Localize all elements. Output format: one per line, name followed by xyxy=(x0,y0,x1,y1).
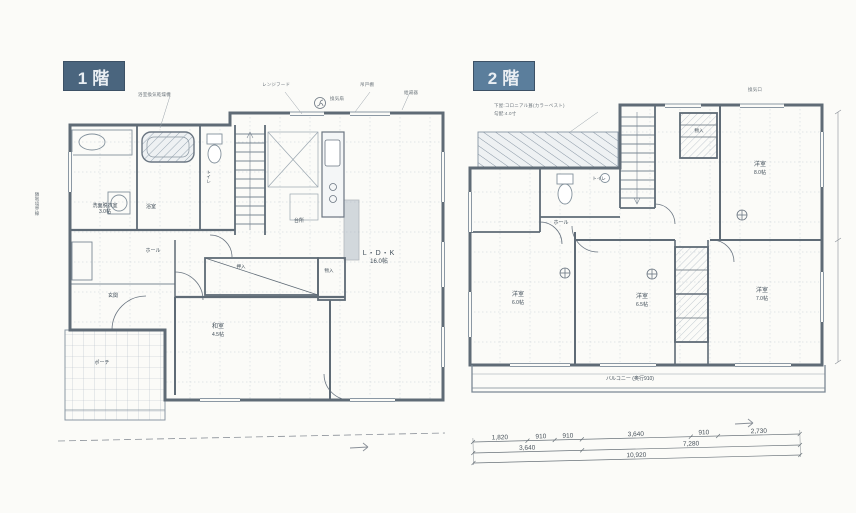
room-label-storage-1f: 物入 xyxy=(315,268,343,274)
room-label-toilet-1f: トイレ xyxy=(206,170,212,184)
note-bath-fan: 浴室換気乾燥機 xyxy=(138,92,171,98)
floor1-plan-drawing xyxy=(50,92,450,492)
note-cupboard: 吊戸棚 xyxy=(360,82,374,88)
ceiling-light-icons xyxy=(560,210,747,279)
room-label-bed3: 洋室 6.5帖 xyxy=(622,294,662,308)
dim-value: 910 xyxy=(698,429,709,436)
room-label-hall-2f: ホール xyxy=(544,220,578,226)
dim-value: 3,640 xyxy=(628,431,645,438)
closets-bottom xyxy=(675,247,708,342)
floorplan-sheet: 1階 2階 xyxy=(0,0,856,513)
room-label-oshiire: 押入 xyxy=(226,264,256,270)
dim-value: 910 xyxy=(562,433,573,440)
pantry-x-marks xyxy=(268,132,318,220)
note-boundary: 隣地境界線 xyxy=(34,192,40,216)
dim-value: 7,280 xyxy=(683,440,700,447)
kitchen-counter xyxy=(322,132,359,260)
floor2-tag: 2階 xyxy=(473,61,535,91)
room-label-genkan: 玄関 xyxy=(98,293,128,299)
room-label-porch: ポーチ xyxy=(84,360,120,366)
room-label-ldk: L・D・K 16.0帖 xyxy=(352,250,406,266)
room-label-closet-2f: 物入 xyxy=(684,128,714,134)
room-label-bed4: 洋室 7.0帖 xyxy=(742,288,782,302)
bathtub xyxy=(142,132,194,162)
room-label-bed1: 洋室 8.0帖 xyxy=(740,162,780,176)
dim-value: 1,820 xyxy=(492,434,509,441)
porch-tiles xyxy=(65,330,165,420)
dim-value: 2,730 xyxy=(751,428,768,435)
note-fan: 換気扇 xyxy=(330,96,344,102)
room-label-bed2: 洋室 6.0帖 xyxy=(498,292,538,306)
toilet-fixture-1f xyxy=(207,134,222,163)
note-water-heater: 給湯器 xyxy=(404,90,418,96)
dim-value: 910 xyxy=(535,433,546,440)
roof-hatch xyxy=(478,112,618,168)
note-slope: 勾配:4.0寸 xyxy=(494,111,516,117)
floor1-tag: 1階 xyxy=(63,61,125,91)
note-range-hood: レンジフード xyxy=(262,82,290,88)
dimension-lines: 1,820 910 910 3,640 910 2,730 3,640 7,28… xyxy=(471,427,802,465)
room-label-washitsu: 和室 4.5帖 xyxy=(196,324,240,338)
room-label-bath: 浴室 xyxy=(134,204,168,210)
room-label-kitchen: 台所 xyxy=(284,218,314,224)
room-label-balcony: バルコニー (奥行910) xyxy=(560,376,700,382)
room-label-washroom: 洗面脱衣室 3.0帖 xyxy=(82,203,128,216)
dim-total: 10,920 xyxy=(626,452,646,459)
ventilation-fan-icon xyxy=(315,98,326,109)
closet-top xyxy=(680,113,717,158)
stairs-1f xyxy=(235,132,265,230)
room-label-hall-1f: ホール xyxy=(138,248,168,254)
dim-value: 3,640 xyxy=(519,444,536,451)
note-vent: 換気口 xyxy=(748,87,762,93)
room-label-toilet-2f: トイレ xyxy=(584,176,614,182)
note-roof: 下屋:コロニアル葺(カラーベスト) xyxy=(494,103,565,109)
boundary-line xyxy=(58,433,445,451)
